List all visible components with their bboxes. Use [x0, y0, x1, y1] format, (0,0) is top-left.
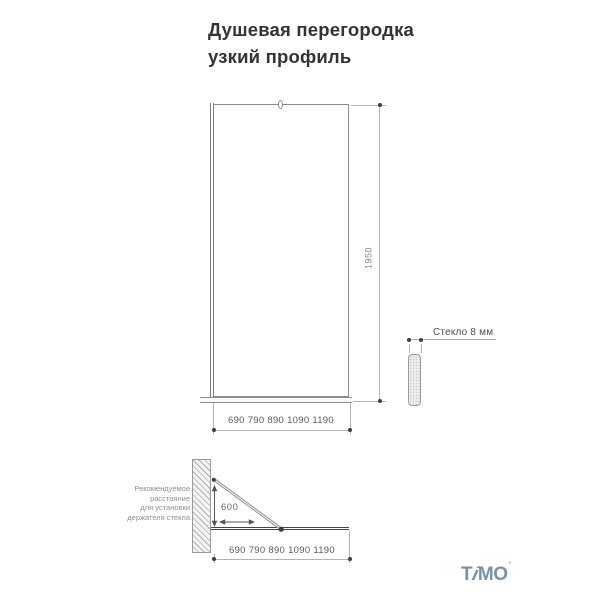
horizontal-range-arrow-icon — [219, 517, 255, 527]
glass-thickness-label: Стекло 8 мм — [433, 327, 493, 338]
holder-note: Рекомендуемое расстояние для установки д… — [114, 484, 190, 522]
holder-distance-label: 600 — [221, 502, 238, 513]
drawing-canvas: Душевая перегородка узкий профиль 1950 6… — [0, 0, 600, 600]
dim-dot — [407, 338, 411, 342]
wall-hatched — [192, 459, 211, 553]
width-dim-line — [213, 430, 350, 431]
glass-cross-section — [408, 354, 421, 406]
timo-logo: TiMO° — [461, 564, 509, 586]
vertical-range-arrow-icon — [210, 485, 219, 527]
glass-ext-line-right — [421, 344, 422, 353]
holder-dot-glass — [279, 527, 284, 532]
height-dim-label: 1950 — [364, 238, 382, 279]
title-line-2: узкий профиль — [208, 43, 414, 70]
dim-dot — [212, 557, 216, 561]
note-line-4: держателя стекла — [114, 513, 190, 523]
logo-letters-mo: MO — [478, 564, 508, 585]
holder-dot-wall — [211, 477, 216, 482]
dim-dot — [378, 103, 382, 107]
plan-width-dim-line — [214, 559, 350, 560]
title-line-1: Душевая перегородка — [208, 16, 414, 43]
page-title: Душевая перегородка узкий профиль — [208, 16, 414, 70]
glass-panel-front — [213, 104, 349, 397]
plan-width-dim-label: 690 790 890 1090 1190 — [212, 545, 352, 556]
dim-dot — [348, 428, 352, 432]
bottom-support-profile — [200, 397, 352, 403]
dim-dot — [212, 428, 216, 432]
top-holder-bracket — [278, 100, 283, 109]
narrow-wall-profile — [210, 103, 214, 398]
dim-dot — [348, 557, 352, 561]
dim-dot — [378, 399, 382, 403]
note-line-3: для установки — [114, 503, 190, 513]
note-line-2: расстояние — [114, 494, 190, 504]
dim-dot — [419, 338, 423, 342]
note-line-1: Рекомендуемое — [114, 484, 190, 494]
logo-mark: ° — [509, 562, 511, 568]
glass-ext-line-left — [409, 344, 410, 353]
width-dim-label: 690 790 890 1090 1190 — [211, 415, 351, 426]
